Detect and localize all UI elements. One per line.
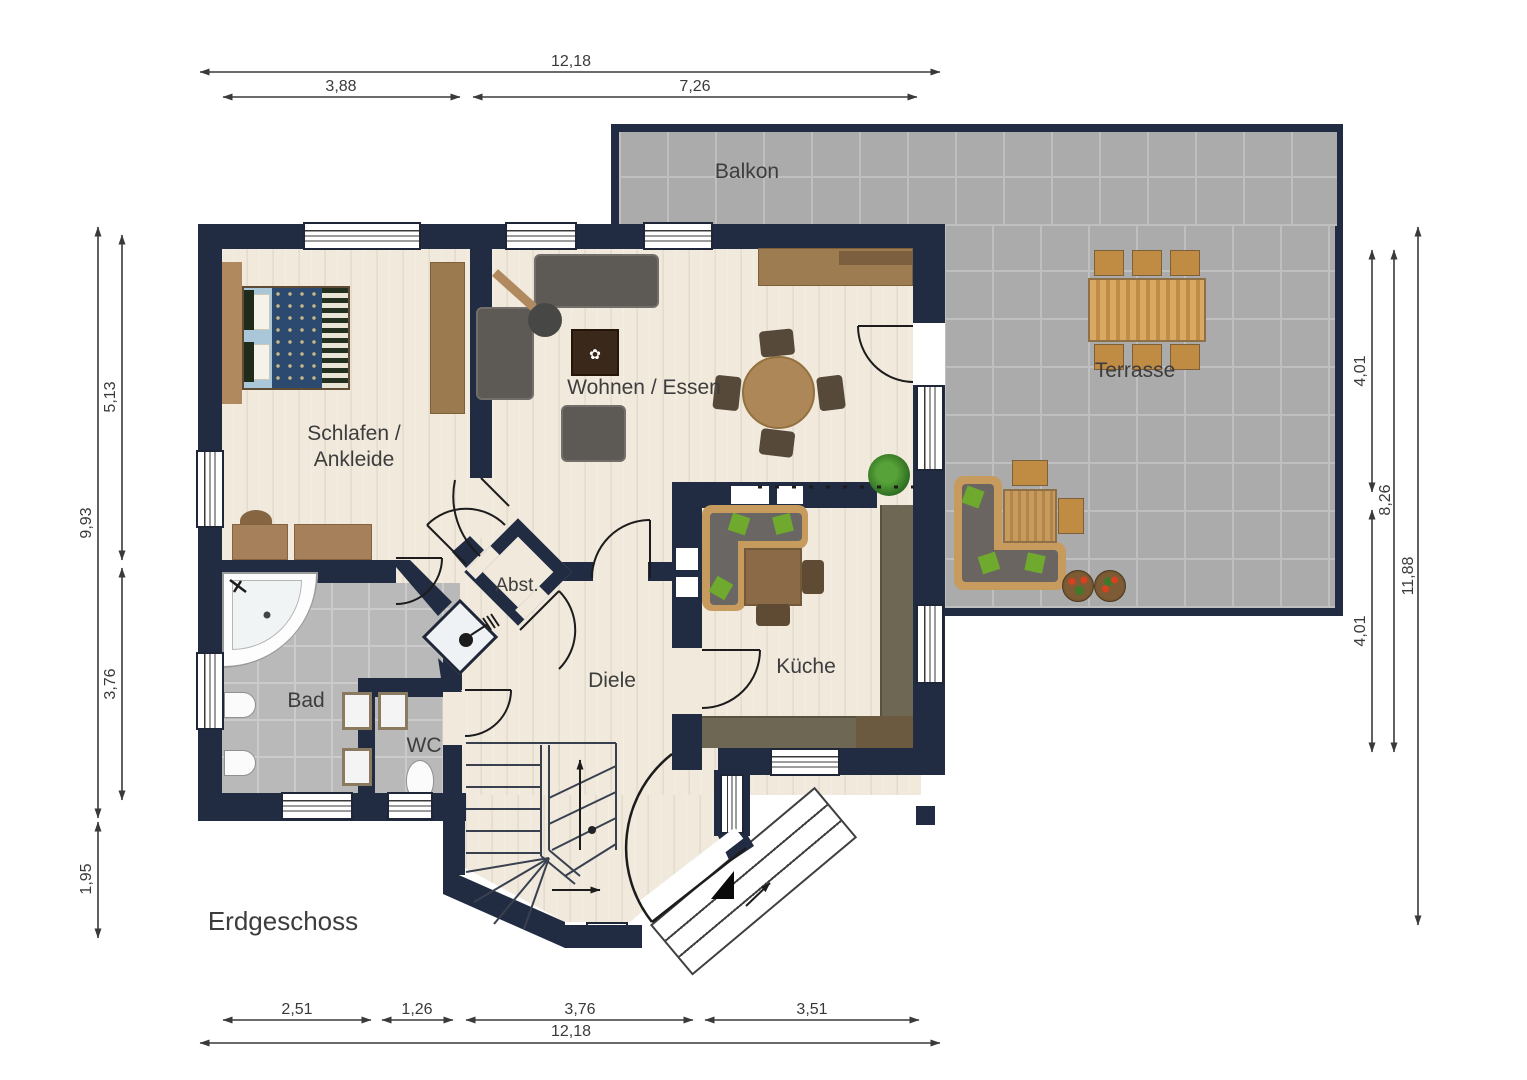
wc-door-opening <box>443 690 462 745</box>
wardrobe <box>430 262 465 414</box>
room-label-abst: Abst. <box>495 574 538 598</box>
window-bath-bottom <box>281 792 353 820</box>
flower-pot-1 <box>1062 570 1094 602</box>
balcony-chair-t2 <box>1132 250 1162 276</box>
bidet <box>224 750 256 776</box>
dim-right-upper: 4,01 <box>1352 355 1370 386</box>
dining-chair-n <box>759 328 796 357</box>
kitchen-hatch-top-2 <box>777 486 803 504</box>
window-living-top-1 <box>505 222 577 250</box>
terrace-door-opening <box>913 323 945 385</box>
window-wc-bottom <box>387 792 433 820</box>
room-label-bad: Bad <box>287 688 324 714</box>
window-kitchen-right <box>916 604 944 684</box>
kitchen-hatch-left-2 <box>676 577 698 597</box>
sofa-left <box>476 307 534 400</box>
dim-right-lower: 4,01 <box>1352 615 1370 646</box>
flower-pot-2 <box>1094 570 1126 602</box>
floor-plan: ✿ <box>0 0 1527 1080</box>
kitchen-door-opening <box>672 648 702 714</box>
kitchen-counter-corner <box>856 716 913 748</box>
kitchen-table <box>744 548 802 606</box>
bed-duvet <box>272 288 322 388</box>
toilet <box>224 692 256 718</box>
dim-left-outer: 9,93 <box>78 507 96 538</box>
dim-top-right: 7,26 <box>679 78 710 96</box>
dim-top-left: 3,88 <box>325 78 356 96</box>
plant-living <box>868 454 910 496</box>
wall-hall-living-b <box>648 562 674 581</box>
bedroom-door-opening <box>470 478 492 538</box>
terrace-table <box>1003 489 1057 543</box>
washbasin-1 <box>342 692 372 730</box>
kitchen-chair-bottom <box>756 604 790 626</box>
room-label-schlafen-line2: Ankleide <box>307 447 400 473</box>
balcony-table <box>1088 278 1206 342</box>
window-bath-left <box>196 652 224 730</box>
floor-lamp-shade <box>528 303 562 337</box>
window-living-top-2 <box>643 222 713 250</box>
dim-bottom-b: 1,26 <box>401 1001 432 1019</box>
room-label-terrasse: Terrasse <box>1095 358 1176 384</box>
kitchen-hatch-left-1 <box>676 548 698 570</box>
room-label-wohnen-essen: Wohnen / Essen <box>567 375 721 401</box>
terrace-pillow-3 <box>1024 552 1045 573</box>
dim-bottom-a: 2,51 <box>281 1001 312 1019</box>
dim-right-outer: 11,88 <box>1400 557 1418 596</box>
kitchen-counter-right <box>880 505 913 720</box>
window-living-right <box>916 385 944 471</box>
dim-bottom-c: 3,76 <box>564 1001 595 1019</box>
kitchen-chair-right <box>802 560 824 594</box>
armchair <box>561 405 626 462</box>
dim-left-upper: 5,13 <box>102 381 120 412</box>
floor-title: Erdgeschoss <box>208 905 358 938</box>
bed-cushion-dark-1 <box>244 290 254 330</box>
terrace-border-bottom <box>944 608 1343 616</box>
window-kitchen-bottom <box>770 748 840 776</box>
room-label-balkon: Balkon <box>715 159 779 185</box>
dim-right-mid: 8,26 <box>1377 484 1395 515</box>
wall-bay-left <box>443 795 465 875</box>
sideboard <box>758 248 913 286</box>
window-bedroom-left <box>196 450 224 528</box>
dining-chair-s <box>759 428 796 458</box>
pillar <box>916 806 935 825</box>
room-label-schlafen-line1: Schlafen / <box>307 421 400 447</box>
sideboard-shelf <box>839 251 912 265</box>
room-label-schlafen: Schlafen / Ankleide <box>307 421 400 474</box>
bed <box>242 286 350 390</box>
balcony-border-left <box>611 124 619 226</box>
washbasin-2 <box>342 748 372 786</box>
dim-left-lower: 3,76 <box>102 668 120 699</box>
dining-table-round <box>742 356 815 429</box>
terrace-chair-top <box>1012 460 1048 486</box>
bed-blanket-striped <box>322 288 348 388</box>
room-label-diele: Diele <box>588 668 636 694</box>
dim-left-bay: 1,95 <box>78 863 96 894</box>
desk <box>232 524 288 560</box>
balcony-chair-t1 <box>1094 250 1124 276</box>
terrace-chair-right <box>1058 498 1084 534</box>
sofa-top <box>534 254 659 308</box>
wall-right <box>913 224 945 775</box>
window-bay-side <box>720 774 744 834</box>
dim-top-total: 12,18 <box>551 53 591 71</box>
washbasin-wc <box>378 692 408 730</box>
window-bay-bottom <box>586 922 628 948</box>
dining-chair-e <box>816 375 846 412</box>
window-bedroom-top <box>303 222 421 250</box>
balcony-chair-t3 <box>1170 250 1200 276</box>
wall-kitchen-left <box>672 482 702 770</box>
dim-bottom-total: 12,18 <box>551 1023 591 1041</box>
bed-headboard <box>222 262 242 404</box>
room-label-wc: WC <box>407 733 442 759</box>
coffee-table: ✿ <box>571 329 619 376</box>
kitchen-hatch-top-1 <box>731 486 769 504</box>
bed-cushion-dark-2 <box>244 342 254 382</box>
balcony-border-top <box>611 124 1343 132</box>
dim-bottom-d: 3,51 <box>796 1001 827 1019</box>
dresser <box>294 524 372 560</box>
room-label-kueche: Küche <box>776 654 836 680</box>
